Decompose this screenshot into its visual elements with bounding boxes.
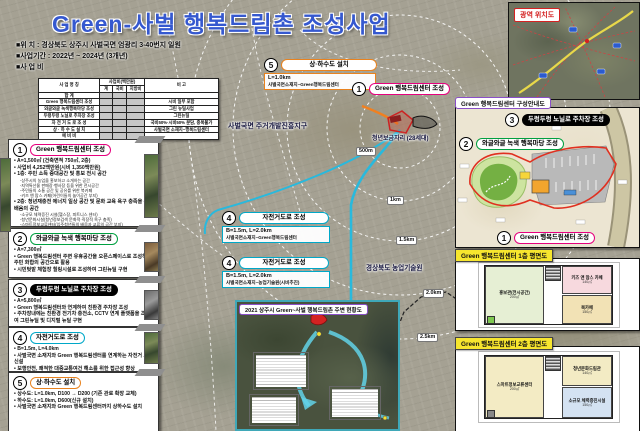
col-note: 비 고 [144, 79, 218, 93]
room-area: 150㎡ [582, 403, 592, 407]
budget-table: 사 업 명 칭 사업비(백만원) 비 고 계 국비 지방비 합 계 Green … [38, 78, 219, 140]
callout-line: 사벌국면소재지~Green행복드림센터 [226, 235, 326, 241]
table-row: 두렁두렁 노닐로 주차장 조성그린뉴딜 [39, 112, 219, 119]
room-area: 150㎡ [582, 310, 592, 314]
stairs [545, 266, 561, 281]
section-number-badge: 3 [13, 283, 27, 297]
col-name: 사 업 명 칭 [39, 79, 100, 93]
site-photo [144, 242, 159, 272]
bullet-item: 사벌국면 소재지와 Green 행복드림센터를 연계하는 자전거 도로 신설 [14, 353, 155, 366]
room-book-cafe: 북카페 150㎡ [562, 295, 612, 324]
col-cost: 사업비(백만원) [100, 79, 145, 86]
callout-number-badge: 5 [264, 58, 278, 72]
callout-detail-box: B=1.5m, L=2.0km 사벌국면소재지~Green행복드림센터 [222, 226, 330, 243]
sub-bullet-list: -상주시의 농업을 홍보하고 소개하는 공간 -지역특산물 판매장·행사장 등을… [20, 178, 155, 198]
room-area: 200㎡ [510, 387, 520, 391]
table-row: 자 전 거 도 로 조 성국비50%·시비50% 분담, 중복불가 [39, 119, 219, 126]
row-name: 합 계 [39, 92, 100, 99]
room-smart-center: 스마트정보교류센터 200㎡ [485, 356, 544, 418]
bullet-item: 2층: 청년재충전 에너지 일상 공간 및 문화 교육 욕구 충족을 위한 배움… [14, 199, 155, 212]
floor2-title: Green 행복드림센터 2층 평면도 [455, 337, 553, 350]
redacted-cell [100, 119, 113, 126]
row-note: 그린 뉴딜사업 [144, 106, 218, 113]
callout-title-pill: 자전거도로 조성 [239, 212, 329, 224]
site-layout-panel: 3 두렁두렁 노닐로 주차장 조성 2 와글와글 녹색 행복마당 조성 1 Gr… [455, 107, 640, 248]
site-photo [144, 154, 159, 218]
inset-info-box [253, 352, 309, 390]
callout-line: B=1.5m, L=2.0km [226, 228, 326, 235]
section-number-badge: 1 [13, 143, 27, 157]
callout-line: B=1.5m, L=2.0km [226, 273, 326, 280]
room-youth-culture: 청년문화드림관 140㎡ [562, 356, 612, 386]
redacted-cell [127, 126, 145, 133]
map-callout-bike-b: 4 자전거도로 조성 B=1.5m, L=2.0km 사벌국면소재지~농업기술원… [222, 256, 330, 288]
section-number-badge: 2 [13, 232, 27, 246]
meta-budget-label: ■사 업 비 [16, 62, 43, 72]
bullet-item: Green 행복드림센터 주변 유휴공간을 오픈스페이스로 조성하여 주민 화합… [14, 254, 155, 267]
col-national: 국비 [113, 85, 127, 92]
ring-label-1km: 1km [387, 196, 404, 205]
floor2-plan: 스마트정보교류센터 200㎡ 청년문화드림관 140㎡ 소규모 체력증진시설 1… [484, 355, 613, 419]
sub-bullet-item: -키즈 앤 맘스 카페(어린이들의 놀이공간 부지) [20, 193, 155, 198]
map-callout-bike-a: 4 자전거도로 조성 B=1.5m, L=2.0km 사벌국면소재지~Green… [222, 211, 330, 243]
ring-label-2km: 2.0km [423, 289, 444, 298]
inset-info-box [329, 386, 381, 420]
site-layout-graphic [456, 108, 639, 247]
plan-callout-pill: 와글와글 녹색 행복마당 조성 [476, 138, 564, 150]
ring-label-500m: 500m [356, 147, 376, 156]
bullet-item: 상수도: L=1.0km, D100 → D200 (기존 관로 확장 교체) [14, 391, 155, 398]
entrance-mark [487, 410, 495, 418]
redacted-cell [127, 99, 145, 106]
section-title-pill: 상·하수도 설치 [30, 377, 81, 389]
callout-title-pill: 상·하수도 설치 [281, 59, 377, 71]
redacted-cell [100, 106, 113, 113]
room-area: 140㎡ [582, 371, 592, 375]
regional-map-title: 광역 위치도 [514, 8, 560, 22]
entrance-mark [487, 316, 495, 324]
floor1-panel: 홍보관(전시공간) 200㎡ 키즈 앤 맘스 카페 140㎡ 북카페 150㎡ [455, 258, 640, 331]
table-row: Green 행복드림센터 조성시비 일부 포함 [39, 99, 219, 106]
redacted-cell [113, 112, 127, 119]
room-area: 140㎡ [582, 280, 592, 284]
row-note: 그린뉴딜 [144, 112, 218, 119]
room-area: 200㎡ [510, 295, 520, 299]
callout-title-pill: Green 행복드림센터 조성 [369, 83, 450, 95]
redacted-cell [113, 99, 127, 106]
row-note: 시비 일부 포함 [144, 99, 218, 106]
redacted-cell [100, 112, 113, 119]
youth-housing-label: 청년보금자리 (28세대) [372, 133, 429, 142]
surroundings-inset-map: 2021 상주시 Green~사벌 행복드림촌 주변 현황도 [235, 300, 400, 431]
floor1-plan: 홍보관(전시공간) 200㎡ 키즈 앤 맘스 카페 140㎡ 북카페 150㎡ [484, 265, 613, 325]
meta-location: ■위 치 : 경상북도 상주시 사벌국면 엄광리 3-40번지 일원 [16, 40, 181, 50]
ring-label-1-5km: 1.5km [396, 236, 417, 245]
site-photo [144, 290, 159, 320]
inset-info-box [249, 394, 299, 426]
callout-number-badge: 4 [222, 211, 236, 225]
callout-title-pill: 자전거도로 조성 [239, 257, 329, 269]
plan-callout-number: 2 [459, 137, 473, 151]
district-label: 사벌국면 주거개발진흥지구 [228, 121, 307, 131]
col-total: 계 [100, 85, 113, 92]
redacted-cell [113, 126, 127, 133]
section-title-pill: 와글와글 녹색 행복마당 조성 [30, 233, 118, 245]
redacted-cell [100, 126, 113, 133]
section-title-pill: 자전거도로 조성 [30, 332, 85, 344]
sub-bullet-list: -소규모 체력증진 시설(헬스장, 피트니스 센터) -청년문화시설(청년정보검… [20, 212, 155, 227]
site-layout-title: Green 행복드림센터 구성안내도 [455, 97, 551, 109]
table-row: 와글와글 녹색행복마당 조성그린 뉴딜사업 [39, 106, 219, 113]
regional-location-map: 광역 위치도 [508, 2, 640, 100]
section-card-4: 4 자전거도로 조성 B=1.5m, L=4.0km 사벌국면 소재지와 Gre… [8, 327, 159, 372]
redacted-cell [113, 92, 127, 99]
plan-callout-number: 3 [505, 113, 519, 127]
agritech-label: 경상북도 농업기술원 [366, 262, 422, 272]
stairs [545, 356, 561, 371]
callout-detail-box: B=1.5m, L=2.0km 사벌국면소재지~농업기술원(시비추진) [222, 271, 330, 288]
room-kids-cafe: 키즈 앤 맘스 카페 140㎡ [562, 266, 612, 294]
redacted-cell [113, 106, 127, 113]
row-name: 두렁두렁 노닐로 주차장 조성 [39, 112, 100, 119]
sub-bullet-item: -스마트정보교류센터(입주청년들의 배움과 교류의 공간 부지) [20, 222, 155, 227]
redacted-cell [100, 92, 113, 99]
bullet-list: A=7,300㎡ Green 행복드림센터 주변 유휴공간을 오픈스페이스로 조… [14, 247, 155, 273]
table-row: 합 계 [39, 92, 219, 99]
section-title-pill: 두렁두렁 노닐로 주차장 조성 [30, 284, 118, 296]
redacted-cell [113, 119, 127, 126]
row-note: 사벌국면 소재지~행복드림센터 [144, 126, 218, 133]
section-number-badge: 4 [13, 331, 27, 345]
floor2-panel: 스마트정보교류센터 200㎡ 청년문화드림관 140㎡ 소규모 체력증진시설 1… [455, 346, 640, 431]
callout-line: 사벌국면소재지~농업기술원(시비추진) [226, 280, 326, 286]
row-name: 상 · 하 수 도 설 치 [39, 126, 100, 133]
redacted-cell [127, 112, 145, 119]
section-card-3: 3 두렁두렁 노닐로 주차장 조성 A=5,800㎡ Green 행복드림센터와… [8, 279, 159, 327]
floor1-title: Green 행복드림센터 1층 평면도 [455, 249, 553, 262]
map-callout-center: 1 Green 행복드림센터 조성 [352, 82, 450, 96]
section-card-1: 1 Green 행복드림센터 조성 A=1,500㎡ (건축면적 750㎡, 2… [8, 139, 159, 227]
ring-label-2-5km: 2.5km [417, 333, 438, 342]
col-local: 지방비 [127, 85, 145, 92]
redacted-cell [127, 106, 145, 113]
site-photo [0, 158, 11, 232]
site-photo [144, 332, 159, 364]
row-name: Green 행복드림센터 조성 [39, 99, 100, 106]
meta-period: ■사업기간 : 2022년 ~ 2024년 (3개년) [16, 51, 128, 61]
bullet-item: 주차장내에는 친환경 전기차 충전소, CCTV 연계 플랫폼을 조성하여 그린… [14, 311, 155, 324]
bullet-list: 상수도: L=1.0km, D100 → D200 (기존 관로 확장 교체) … [14, 391, 155, 411]
redacted-cell [127, 92, 145, 99]
callout-number-badge: 4 [222, 256, 236, 270]
page-title: Green-사벌 행복드림촌 조성사업 [52, 5, 391, 39]
bullet-list: B=1.5m, L=4.0km 사벌국면 소재지와 Green 행복드림센터를 … [14, 346, 155, 372]
bullet-item: 사벌국면 소재지와 Green 행복드림센터까지 상하수도 설치 [14, 404, 155, 411]
section-card-5: 5 상·하수도 설치 상수도: L=1.0km, D100 → D200 (기존… [8, 372, 159, 431]
callout-number-badge: 1 [352, 82, 366, 96]
table-header-row: 사 업 명 칭 사업비(백만원) 비 고 [39, 79, 219, 86]
plan-callout-number: 1 [497, 231, 511, 245]
redacted-cell [127, 119, 145, 126]
row-name: 와글와글 녹색행복마당 조성 [39, 106, 100, 113]
row-name: 자 전 거 도 로 조 성 [39, 119, 100, 126]
site-marker [388, 111, 437, 133]
bullet-item: 시민텃밭 체험장 힐링시설로 조성하여 그린뉴딜 구현 [14, 267, 155, 274]
row-note [144, 92, 218, 99]
bullet-list: A=5,800㎡ Green 행복드림센터와 연계하여 친환경 주차장 조성 주… [14, 298, 155, 324]
redacted-cell [100, 99, 113, 106]
poster-root: Green-사벌 행복드림촌 조성사업 ■위 치 : 경상북도 상주시 사벌국면… [0, 0, 640, 431]
plan-callout-pill: 두렁두렁 노닐로 주차장 조성 [522, 114, 610, 126]
plan-callout-pill: Green 행복드림센터 조성 [514, 232, 595, 244]
section-card-2: 2 와글와글 녹색 행복마당 조성 A=7,300㎡ Green 행복드림센터 … [8, 228, 159, 278]
inset-title-pill: 2021 상주시 Green~사벌 행복드림촌 주변 현황도 [239, 304, 368, 315]
section-title-pill: Green 행복드림센터 조성 [30, 144, 111, 156]
bullet-list: 2층: 청년재충전 에너지 일상 공간 및 문화 교육 욕구 충족을 위한 배움… [14, 199, 155, 212]
bullet-list: A=1,500㎡ (건축면적 750㎡, 2층) 사업비 4,252백만원(시비… [14, 158, 155, 178]
section-number-badge: 5 [13, 376, 27, 390]
callout-line: L=1.0km [268, 75, 372, 82]
row-note: 국비50%·시비50% 분담, 중복불가 [144, 119, 218, 126]
table-row: 상 · 하 수 도 설 치사벌국면 소재지~행복드림센터 [39, 126, 219, 133]
room-fitness: 소규모 체력증진시설 150㎡ [562, 387, 612, 418]
